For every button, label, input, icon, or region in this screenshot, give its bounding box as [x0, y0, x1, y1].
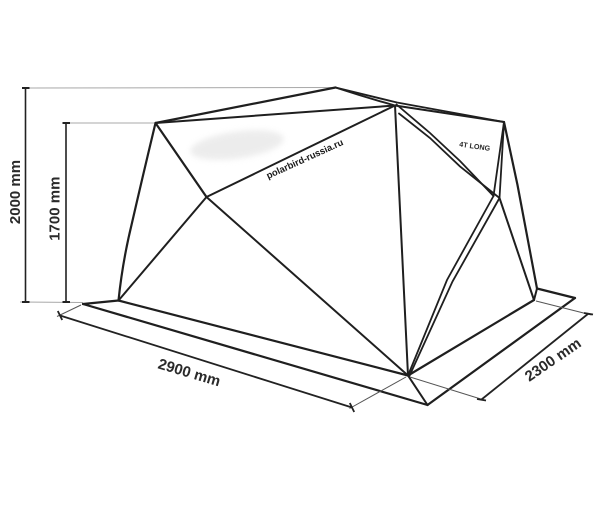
svg-text:1700 mm: 1700 mm	[46, 177, 63, 241]
svg-text:2000 mm: 2000 mm	[7, 160, 24, 224]
